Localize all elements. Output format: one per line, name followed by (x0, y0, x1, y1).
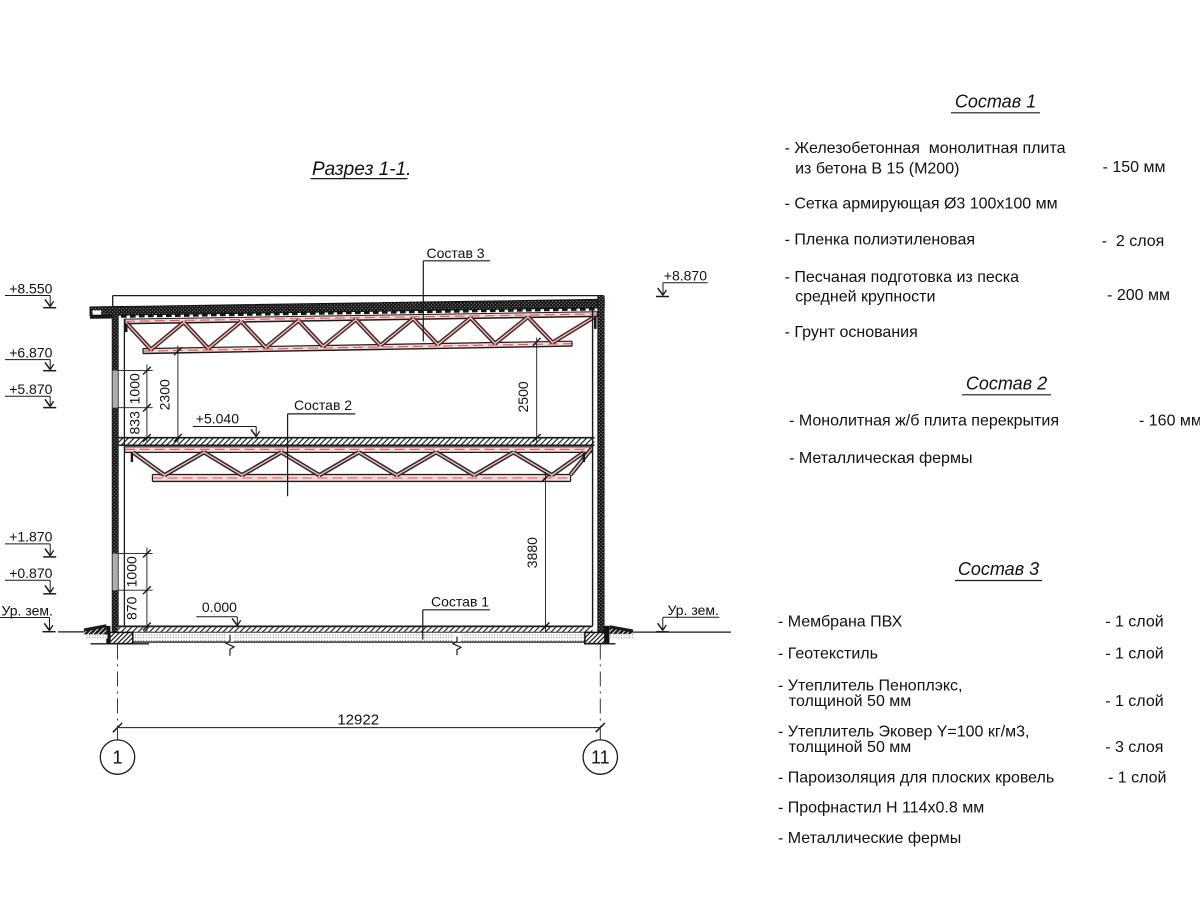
svg-text:- Сетка армирующая Ø3 100х100: - Сетка армирующая Ø3 100х100 мм (785, 195, 1058, 212)
svg-text:11: 11 (591, 747, 610, 767)
svg-text:+0.870: +0.870 (9, 565, 52, 581)
svg-text:- Песчаная подготовка из песка: - Песчаная подготовка из песка (785, 269, 1020, 286)
svg-text:0.000: 0.000 (202, 599, 237, 615)
svg-text:1: 1 (112, 747, 122, 767)
svg-text:2300: 2300 (156, 379, 172, 410)
svg-text:+5.040: +5.040 (196, 410, 239, 426)
svg-text:- 160 мм: - 160 мм (1139, 412, 1200, 429)
svg-text:- 1 слой: - 1 слой (1105, 613, 1163, 630)
svg-text:толщиной 50 мм: толщиной 50 мм (789, 693, 912, 710)
svg-text:- Профнастил Н 114х0.8 мм: - Профнастил Н 114х0.8 мм (778, 800, 984, 817)
svg-text:Состав 2: Состав 2 (294, 397, 352, 413)
svg-text:3880: 3880 (524, 537, 540, 568)
svg-text:- Металлические фермы: - Металлические фермы (778, 830, 961, 847)
svg-text:+1.870: +1.870 (9, 529, 52, 545)
svg-text:- Утеплитель Пеноплэкс,: - Утеплитель Пеноплэкс, (778, 677, 962, 694)
svg-text:870: 870 (124, 596, 140, 620)
svg-text:Состав 1: Состав 1 (431, 594, 489, 610)
svg-text:- 2 слоя: - 2 слоя (1102, 233, 1165, 250)
svg-text:- Пароизоляция для плоских кро: - Пароизоляция для плоских кровель (778, 769, 1054, 786)
svg-text:- 200 мм: - 200 мм (1107, 287, 1170, 304)
svg-text:+8.550: +8.550 (9, 280, 52, 296)
svg-text:- Пленка полиэтиленовая: - Пленка полиэтиленовая (785, 232, 975, 249)
svg-text:- Железобетонная монолитная п: - Железобетонная монолитная плита (785, 140, 1066, 157)
svg-text:+6.870: +6.870 (9, 344, 52, 360)
svg-text:- 1 слой: - 1 слой (1105, 646, 1163, 663)
svg-text:833: 833 (127, 411, 143, 435)
svg-text:+5.870: +5.870 (9, 381, 52, 397)
svg-text:Состав 1: Состав 1 (955, 92, 1036, 112)
svg-text:Состав 3: Состав 3 (958, 559, 1039, 579)
svg-text:из бетона В 15 (М200): из бетона В 15 (М200) (795, 160, 959, 177)
svg-text:Состав 3: Состав 3 (427, 245, 485, 261)
svg-text:Разрез 1-1.: Разрез 1-1. (312, 159, 411, 180)
svg-text:- Монолитная ж/б плита перекры: - Монолитная ж/б плита перекрытия (789, 412, 1059, 429)
svg-text:- Грунт основания: - Грунт основания (785, 324, 918, 341)
svg-text:Ур. зем.: Ур. зем. (668, 602, 719, 618)
svg-text:12922: 12922 (337, 711, 379, 728)
svg-text:+8.870: +8.870 (664, 268, 707, 284)
svg-text:средней крупности: средней крупности (795, 289, 935, 306)
svg-text:Ур. зем.: Ур. зем. (2, 602, 53, 618)
svg-text:2500: 2500 (515, 381, 531, 412)
svg-text:- Металлическая фермы: - Металлическая фермы (789, 450, 972, 467)
svg-text:- 150 мм: - 150 мм (1103, 159, 1166, 176)
svg-text:- 1 слой: - 1 слой (1105, 693, 1163, 710)
svg-text:1000: 1000 (127, 373, 143, 404)
svg-text:- 1 слой: - 1 слой (1108, 769, 1166, 786)
svg-text:толщиной 50 мм: толщиной 50 мм (789, 739, 912, 756)
svg-text:- Мембрана ПВХ: - Мембрана ПВХ (778, 613, 903, 630)
svg-text:1000: 1000 (124, 556, 140, 587)
svg-text:Состав 2: Состав 2 (966, 374, 1047, 394)
svg-text:- Геотекстиль: - Геотекстиль (778, 646, 878, 663)
svg-text:- 3 слоя: - 3 слоя (1105, 739, 1163, 756)
